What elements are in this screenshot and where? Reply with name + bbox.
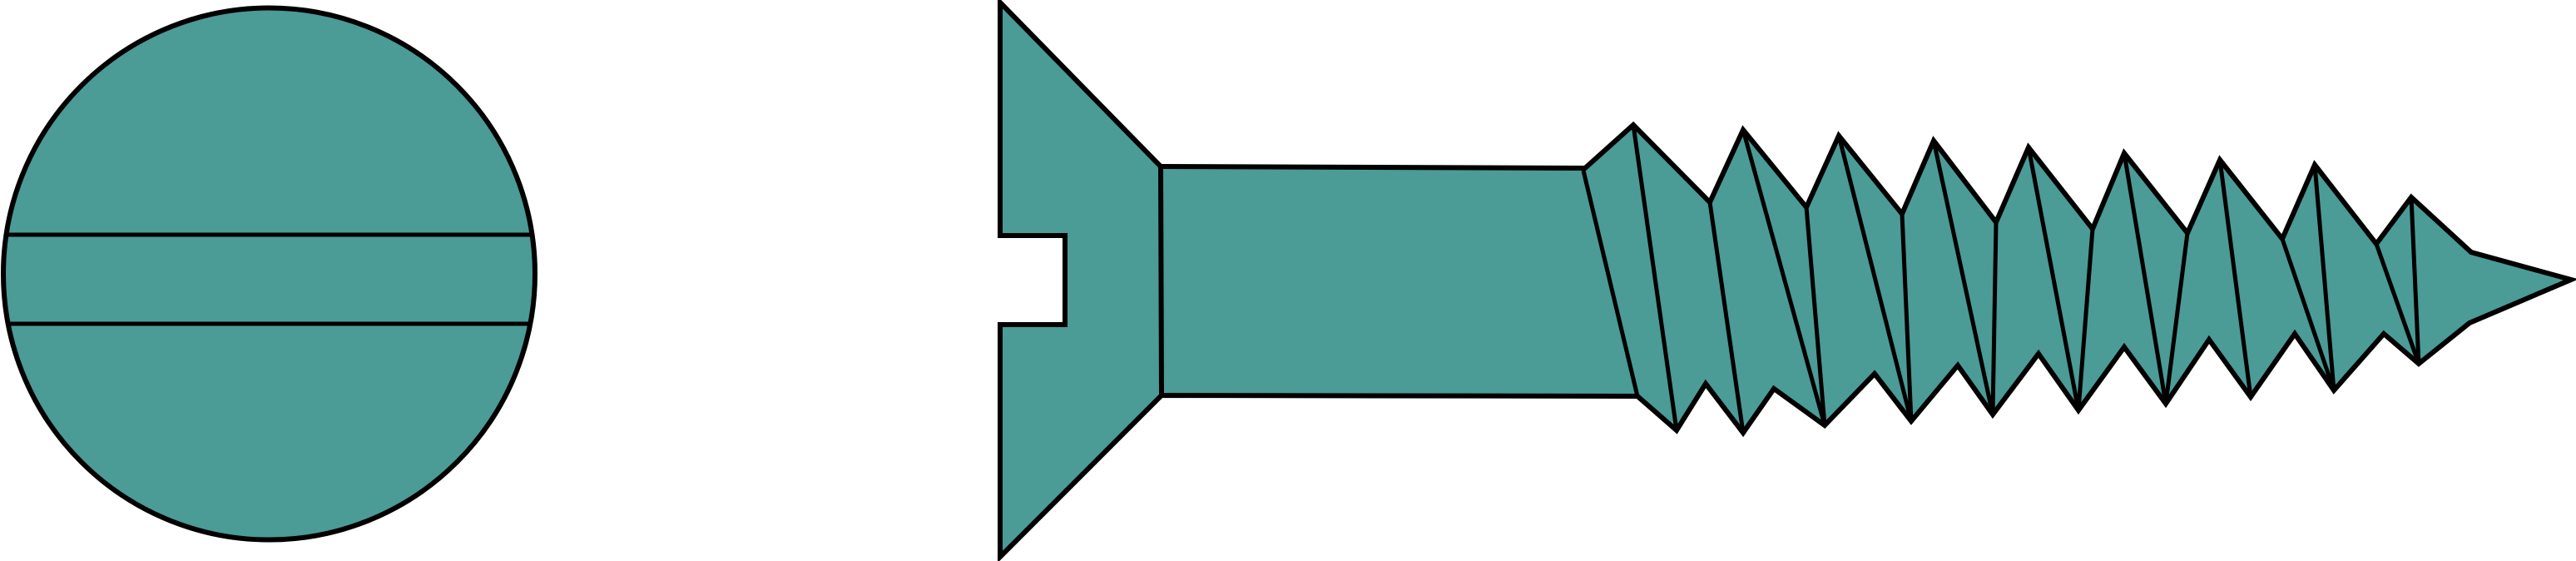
drawing-canvas	[0, 0, 2576, 561]
screw-head-top-view	[3, 8, 535, 540]
screw-side-view	[1000, 2, 2571, 557]
screw-head-circle	[3, 8, 535, 540]
head-shank-boundary-line	[1161, 166, 1162, 395]
screw-technical-drawing	[0, 0, 2576, 561]
